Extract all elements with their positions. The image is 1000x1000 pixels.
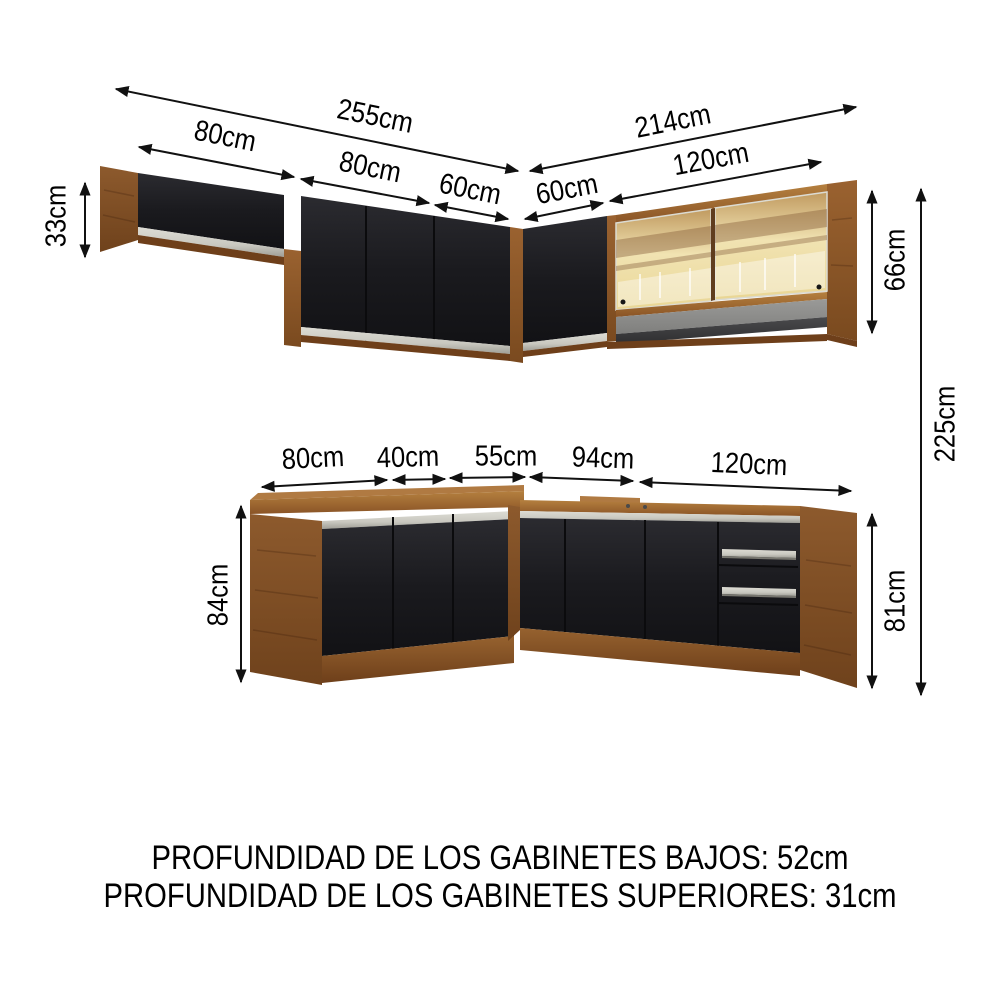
- hinge-hardware: [626, 504, 630, 508]
- hinge-hardware: [643, 505, 647, 509]
- glass-door-knob: [621, 300, 626, 305]
- upper-corner-door: [523, 216, 607, 343]
- lower-left-end-panel: [250, 514, 322, 685]
- dim-label-total-height: 225cm: [930, 386, 963, 463]
- dim-label-height-33: 33cm: [41, 185, 74, 247]
- dim-label-height-66: 66cm: [880, 229, 913, 291]
- product-dimension-diagram: 255cm 80cm 80cm 60cm 214cm 60cm 120cm 33…: [0, 0, 1000, 1000]
- corner-post: [510, 227, 523, 363]
- dim-label-lower-seg-80: 80cm: [281, 441, 345, 477]
- glass-cabinet-left-stile: [607, 215, 616, 342]
- depth-notes: PROFUNDIDAD DE LOS GABINETES BAJOS: 52cm…: [0, 839, 1000, 915]
- dim-label-lower-seg-120: 120cm: [710, 447, 788, 483]
- glass-door-divider: [711, 208, 715, 301]
- upper-step-panel: [284, 249, 301, 347]
- dim-label-height-81: 81cm: [880, 570, 913, 632]
- depth-note-upper-cabinets: PROFUNDIDAD DE LOS GABINETES SUPERIORES:…: [70, 877, 930, 915]
- dim-label-lower-seg-40: 40cm: [376, 441, 439, 476]
- dim-arrow-lower-seg-55: [450, 477, 525, 478]
- depth-note-lower-cabinets: PROFUNDIDAD DE LOS GABINETES BAJOS: 52cm: [70, 839, 930, 877]
- dim-label-lower-seg-55: 55cm: [475, 441, 537, 474]
- lower-right-end-panel: [800, 506, 857, 688]
- glass-cabinet-end-panel: [827, 180, 857, 341]
- dim-label-height-84: 84cm: [203, 564, 236, 626]
- glass-door-knob: [817, 285, 822, 290]
- lower-left-doors: [322, 519, 514, 656]
- upper-left-end-panel: [100, 166, 138, 252]
- corner-post: [508, 505, 520, 641]
- dim-arrow-lower-seg-40: [393, 479, 445, 480]
- dim-label-lower-seg-94: 94cm: [571, 441, 635, 476]
